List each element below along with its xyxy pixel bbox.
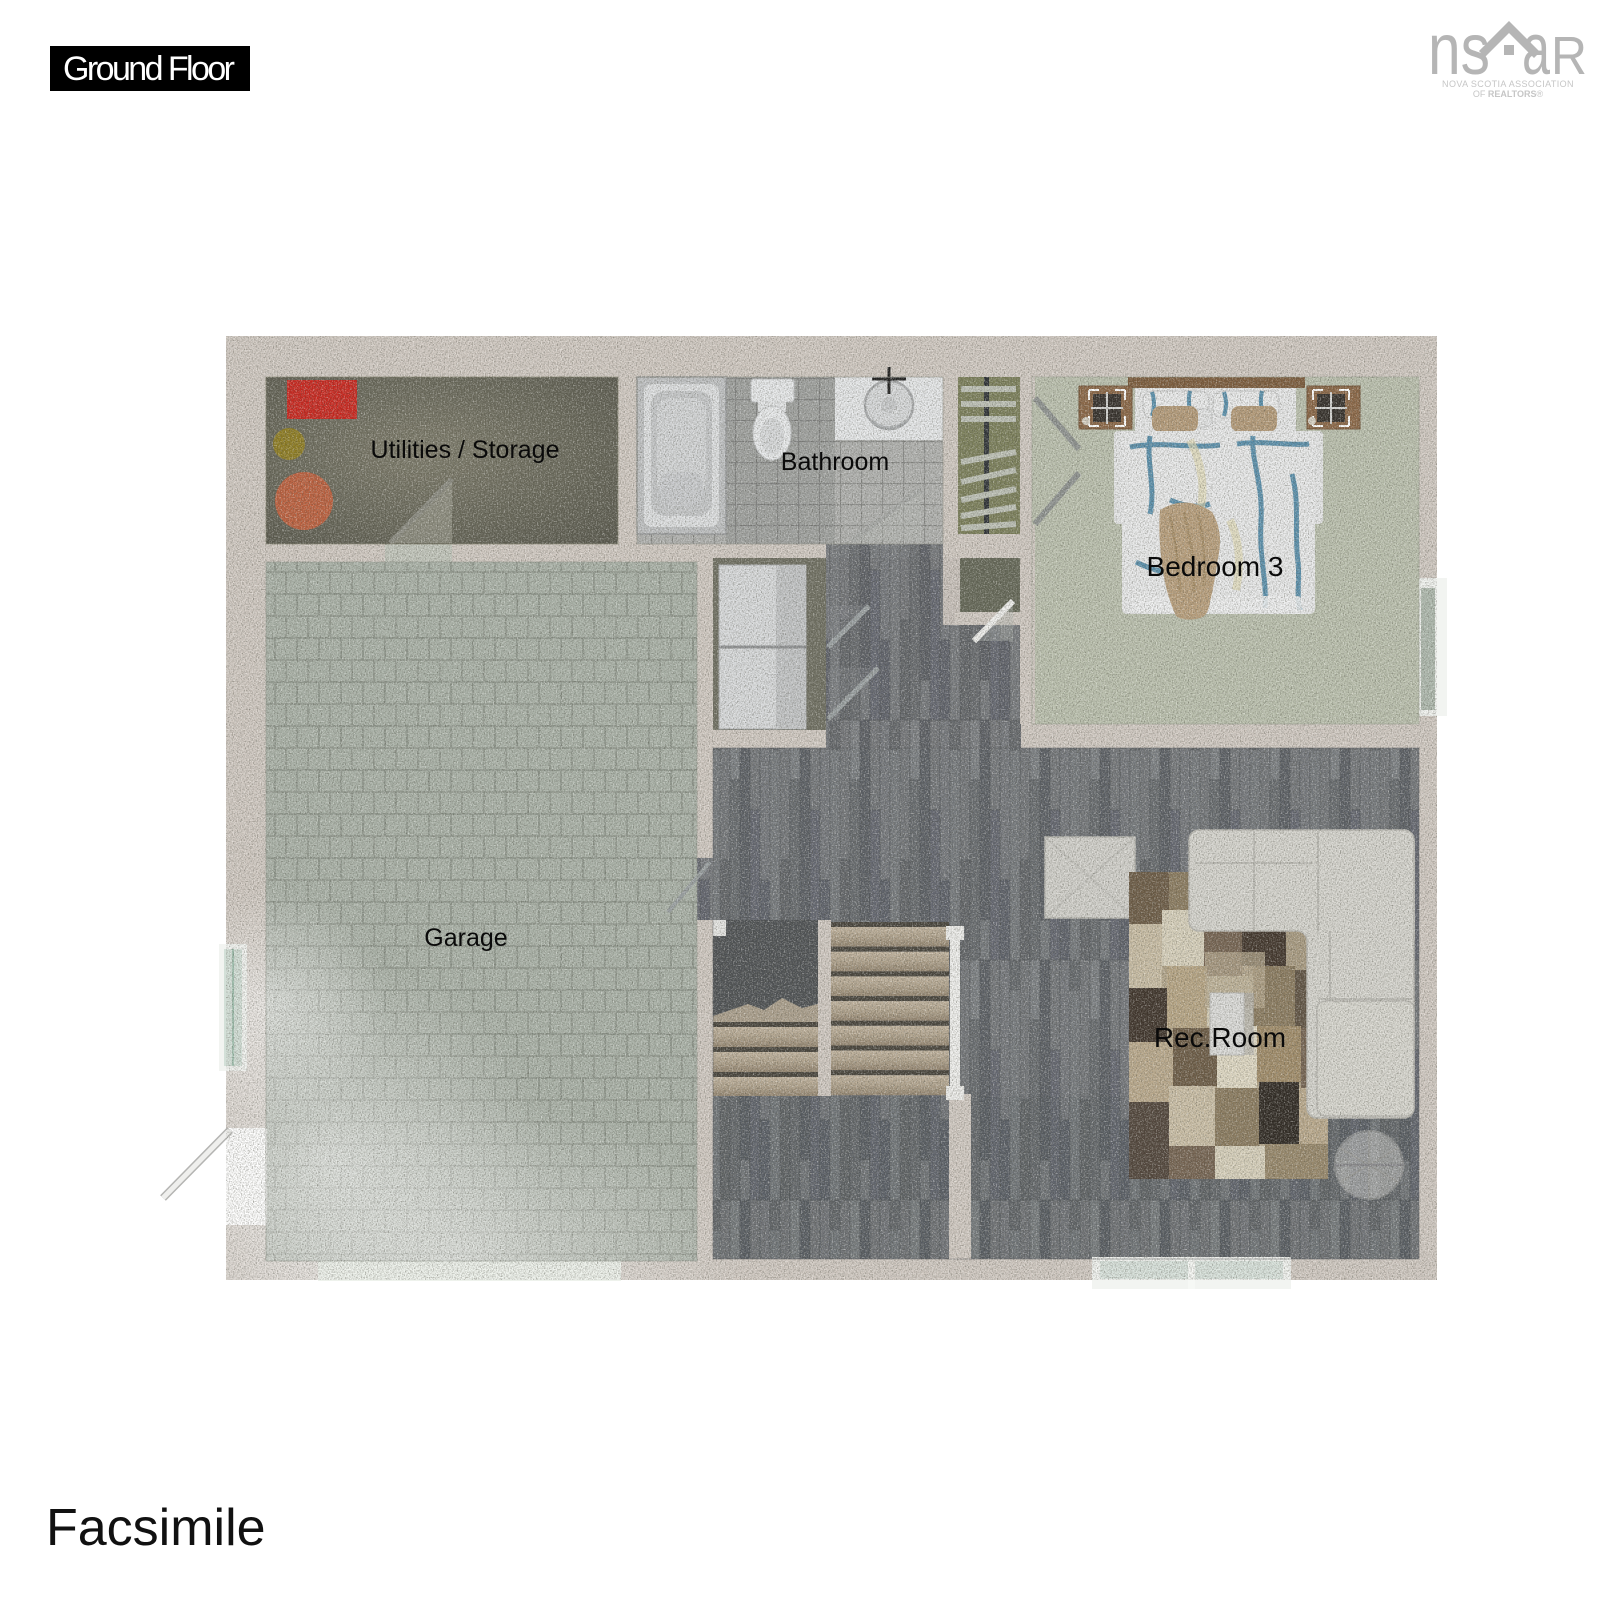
svg-text:Rec.Room: Rec.Room [1154, 1022, 1286, 1053]
svg-text:Ground Floor: Ground Floor [63, 50, 235, 88]
svg-text:OF REALTORS®: OF REALTORS® [1473, 89, 1544, 99]
svg-text:Bedroom 3: Bedroom 3 [1147, 551, 1284, 582]
svg-text:NOVA SCOTIA ASSOCIATION: NOVA SCOTIA ASSOCIATION [1442, 79, 1574, 89]
svg-text:R: R [1551, 26, 1587, 86]
svg-text:Bathroom: Bathroom [781, 448, 889, 476]
svg-text:Garage: Garage [424, 924, 507, 952]
svg-text:Facsimile: Facsimile [46, 1499, 266, 1557]
svg-text:Utilities / Storage: Utilities / Storage [371, 436, 560, 464]
